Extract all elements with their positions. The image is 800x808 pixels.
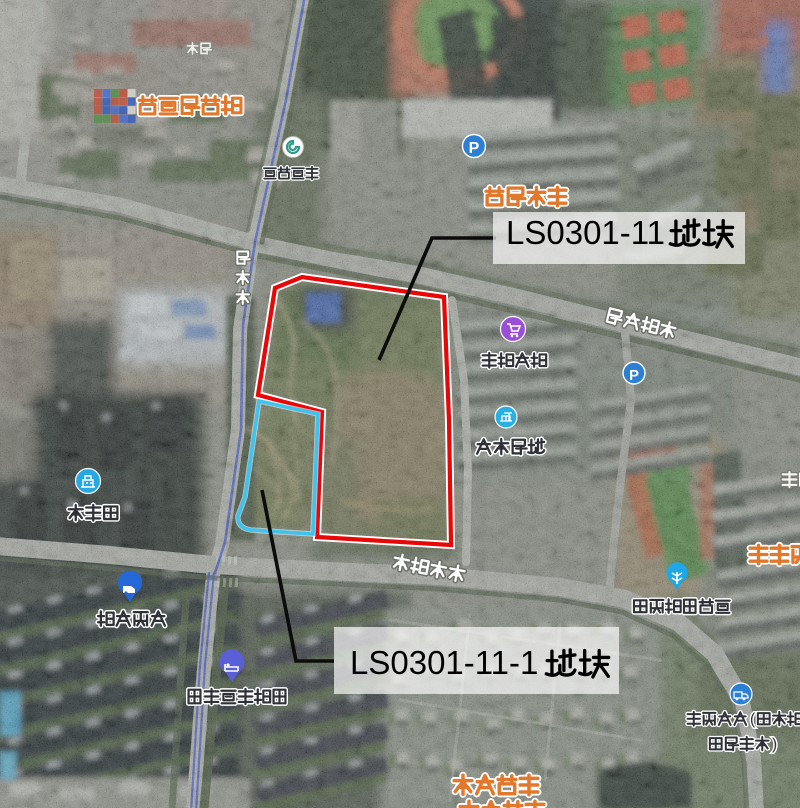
svg-text:): ) [772, 736, 777, 753]
svg-text:LS0301-11: LS0301-11 [506, 214, 665, 251]
svg-text:P: P [629, 367, 639, 384]
svg-text:(: ( [750, 711, 756, 728]
svg-text:P: P [469, 140, 480, 157]
svg-text:LS0301-11-1: LS0301-11-1 [350, 644, 538, 681]
